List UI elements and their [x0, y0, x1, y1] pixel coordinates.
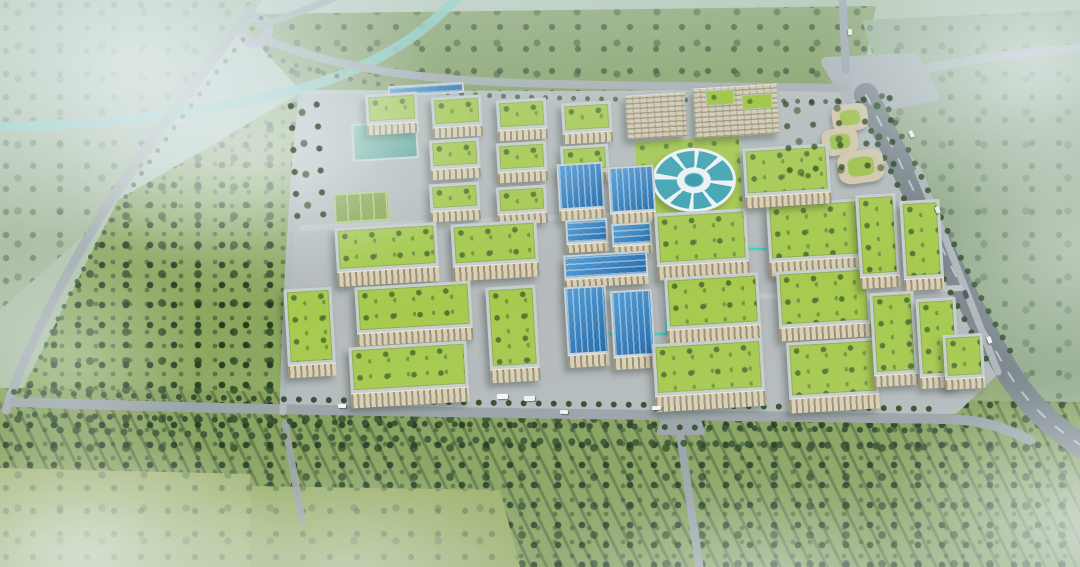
campus-ne-grove: [780, 93, 905, 186]
campus-west-verge: [284, 99, 337, 222]
fog-layer: [0, 0, 1080, 567]
lawn-patch: [742, 93, 773, 110]
lawn-patch: [706, 89, 735, 106]
aerial-render: [0, 0, 1080, 567]
fog-patch: [50, 30, 480, 280]
